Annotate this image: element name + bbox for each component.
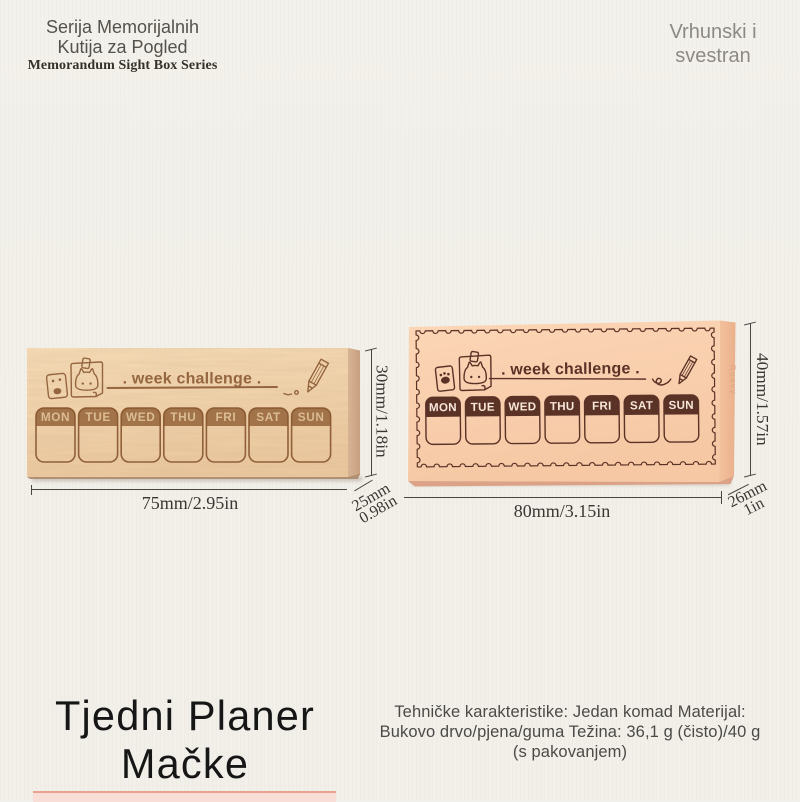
svg-text:TUE: TUE	[471, 401, 495, 414]
svg-text:SUN: SUN	[669, 399, 695, 412]
svg-text:THU: THU	[550, 400, 575, 413]
svg-text:. week challenge .: . week challenge .	[501, 360, 640, 378]
svg-text:MON: MON	[429, 401, 457, 414]
svg-text:SAT: SAT	[630, 399, 653, 412]
svg-text:FRI: FRI	[592, 400, 612, 413]
svg-text:Ruavy: Ruavy	[728, 365, 738, 395]
svg-text:WED: WED	[508, 400, 536, 413]
